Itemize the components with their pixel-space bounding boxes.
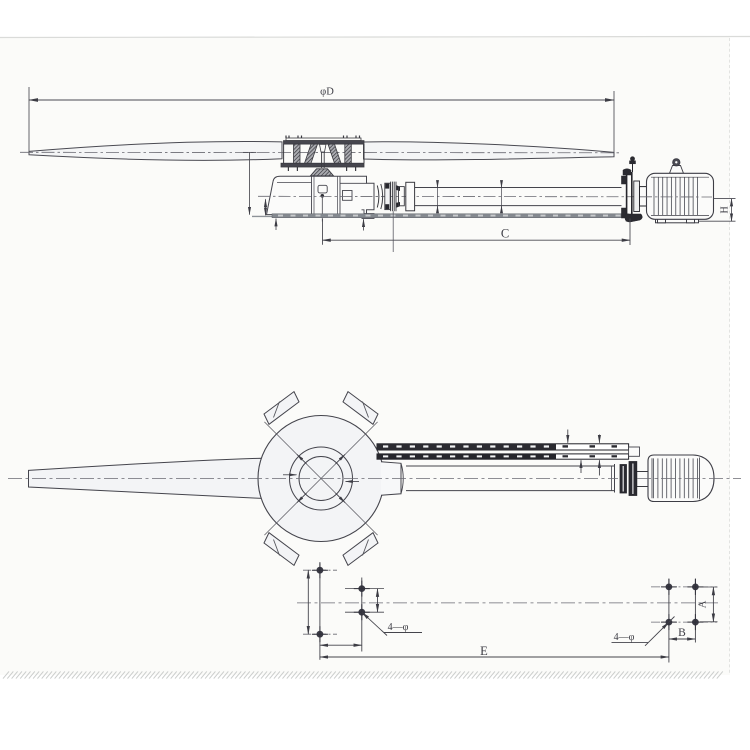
svg-text:H: H <box>720 206 731 213</box>
svg-text:B: B <box>678 627 686 639</box>
svg-text:C: C <box>501 227 509 241</box>
svg-text:4—φ: 4—φ <box>614 632 635 643</box>
svg-text:φD: φD <box>320 87 334 98</box>
svg-text:E: E <box>480 644 488 658</box>
svg-text:4—φ: 4—φ <box>388 622 409 633</box>
svg-text:A: A <box>698 600 709 608</box>
